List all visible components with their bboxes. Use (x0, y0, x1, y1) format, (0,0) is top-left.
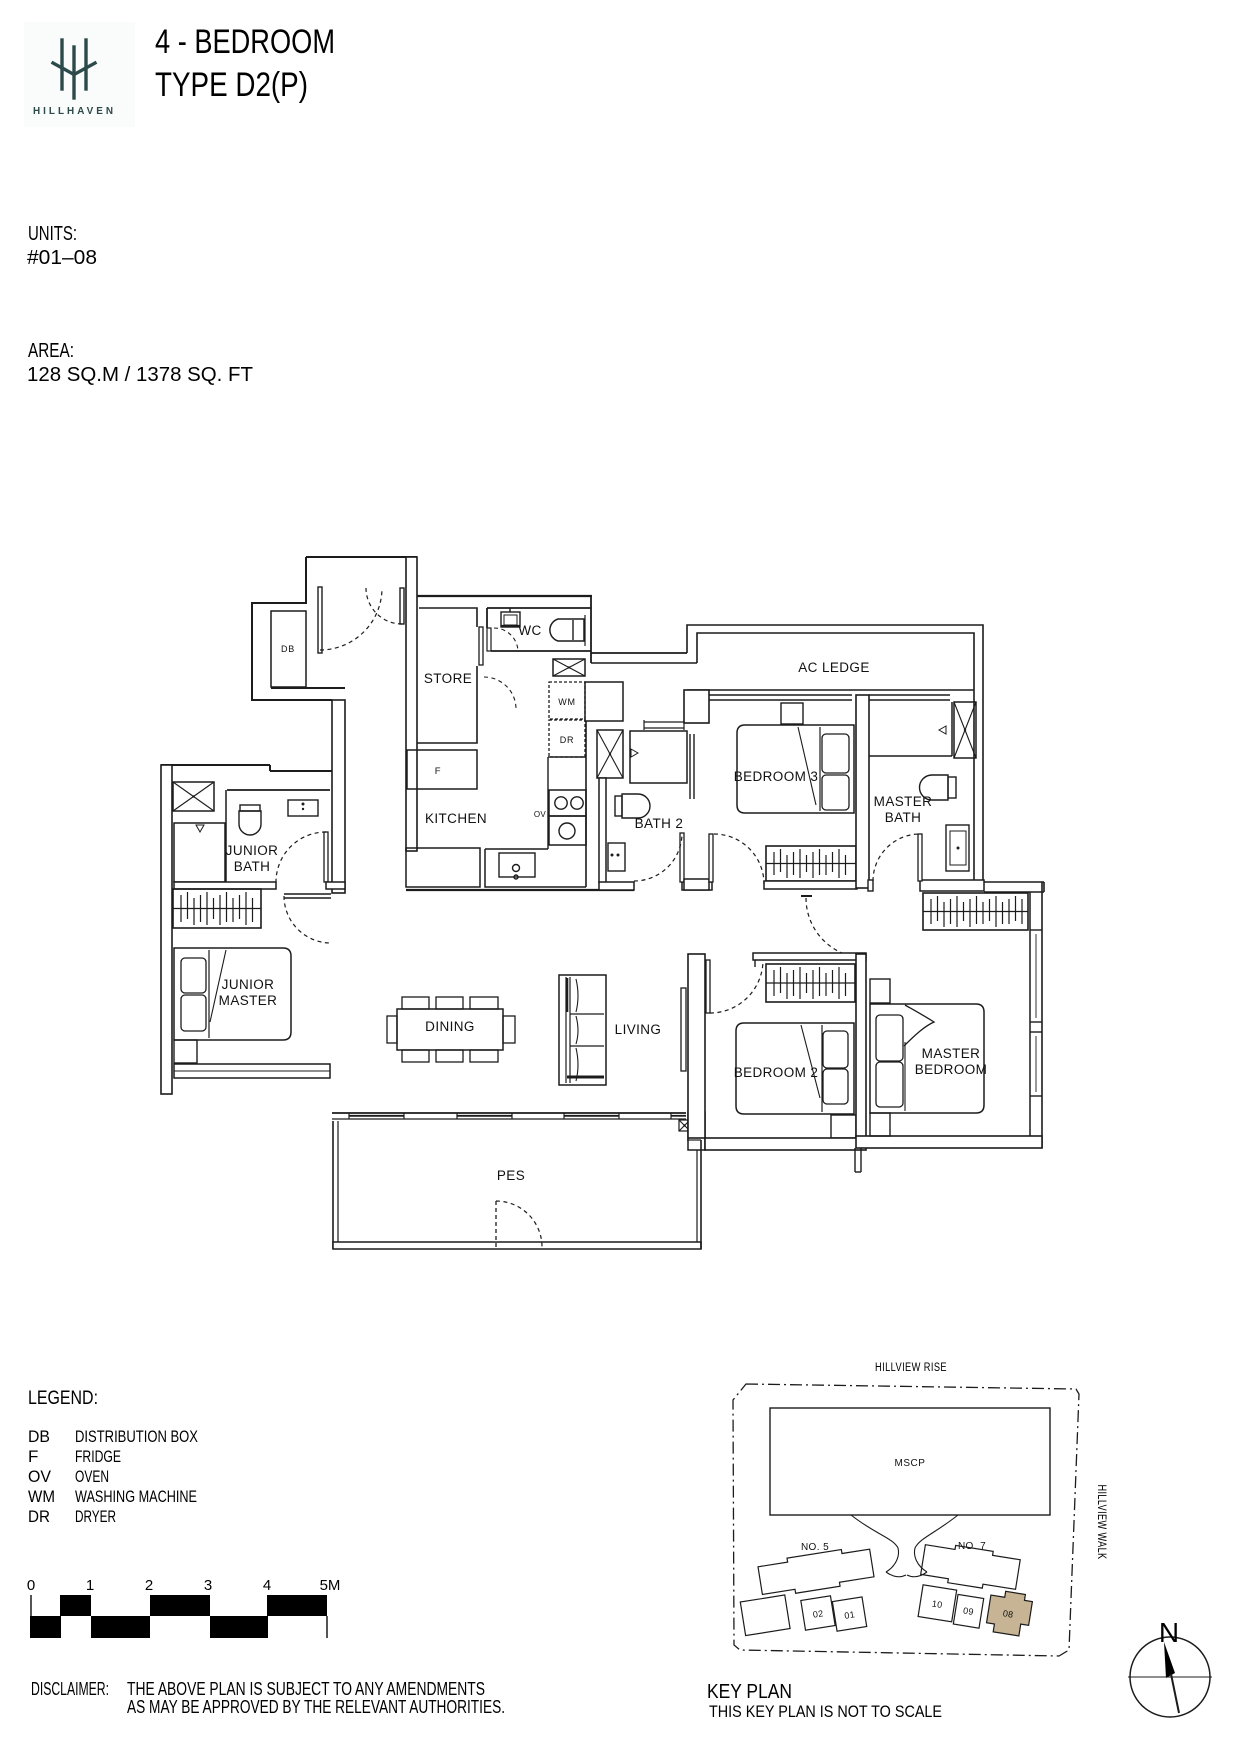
svg-text:4: 4 (263, 1577, 271, 1594)
svg-text:DINING: DINING (425, 1019, 475, 1034)
svg-text:MSCP: MSCP (895, 1458, 926, 1469)
svg-text:NO. 5: NO. 5 (801, 1542, 829, 1553)
svg-text:UNITS:: UNITS: (28, 223, 77, 245)
svg-text:OVEN: OVEN (75, 1467, 109, 1486)
svg-text:DR: DR (560, 735, 575, 745)
svg-text:AC LEDGE: AC LEDGE (798, 660, 869, 675)
svg-text:02: 02 (812, 1608, 824, 1620)
svg-text:KEY PLAN: KEY PLAN (707, 1681, 792, 1703)
svg-text:THE ABOVE PLAN IS SUBJECT: THE ABOVE PLAN IS SUBJECT TO ANY AMENDME… (127, 1679, 485, 1699)
svg-text:BEDROOM 2: BEDROOM 2 (734, 1065, 819, 1080)
svg-text:MASTER: MASTER (922, 1046, 981, 1061)
svg-text:PES: PES (497, 1168, 525, 1183)
svg-text:BATH: BATH (234, 859, 271, 874)
svg-text:1: 1 (86, 1577, 94, 1594)
svg-text:AS MAY BE APPROVED BY THE: AS MAY BE APPROVED BY THE RELEVANT AUTHO… (127, 1697, 505, 1717)
svg-text:DB: DB (28, 1427, 50, 1446)
svg-text:5M: 5M (320, 1577, 341, 1594)
svg-text:DB: DB (281, 644, 295, 654)
svg-text:JUNIOR: JUNIOR (222, 977, 275, 992)
svg-text:HILLVIEW WALK: HILLVIEW WALK (1095, 1485, 1107, 1560)
svg-text:01: 01 (844, 1609, 856, 1621)
svg-text:#01–08: #01–08 (27, 247, 97, 269)
svg-text:WM: WM (28, 1487, 55, 1506)
svg-text:F: F (28, 1447, 38, 1466)
svg-text:WM: WM (558, 697, 576, 707)
svg-text:OV: OV (534, 810, 547, 819)
svg-text:128 SQ.M / 1378 SQ. FT: 128 SQ.M / 1378 SQ. FT (27, 364, 253, 386)
svg-text:09: 09 (962, 1606, 974, 1618)
svg-text:DISTRIBUTION BOX: DISTRIBUTION BOX (75, 1427, 198, 1446)
svg-text:HILLHAVEN: HILLHAVEN (33, 105, 116, 117)
svg-text:STORE: STORE (424, 671, 472, 686)
svg-text:DR: DR (28, 1507, 50, 1526)
svg-text:OV: OV (28, 1467, 52, 1486)
svg-text:4 - BEDROOM: 4 - BEDROOM (155, 23, 335, 61)
svg-text:KITCHEN: KITCHEN (425, 811, 487, 826)
svg-text:F: F (435, 766, 441, 777)
svg-text:AREA:: AREA: (28, 340, 74, 362)
svg-text:TYPE D2(P): TYPE D2(P) (155, 66, 308, 104)
svg-text:08: 08 (1002, 1608, 1014, 1620)
svg-text:10: 10 (931, 1599, 943, 1611)
svg-text:BATH 2: BATH 2 (635, 816, 684, 831)
svg-text:FRIDGE: FRIDGE (75, 1447, 121, 1466)
svg-text:MASTER: MASTER (874, 794, 933, 809)
svg-text:3: 3 (204, 1577, 212, 1594)
svg-text:BEDROOM 3: BEDROOM 3 (734, 769, 819, 784)
svg-text:DRYER: DRYER (75, 1507, 116, 1526)
svg-text:MASTER: MASTER (219, 993, 278, 1008)
svg-text:N: N (1159, 1617, 1179, 1648)
svg-text:2: 2 (145, 1577, 153, 1594)
svg-text:BATH: BATH (885, 810, 922, 825)
svg-text:WC: WC (518, 623, 541, 638)
svg-text:LEGEND:: LEGEND: (28, 1388, 98, 1409)
svg-text:DISCLAIMER:: DISCLAIMER: (31, 1679, 109, 1699)
svg-text:HILLVIEW RISE: HILLVIEW RISE (875, 1362, 947, 1374)
svg-text:BEDROOM: BEDROOM (915, 1062, 988, 1077)
svg-text:WASHING MACHINE: WASHING MACHINE (75, 1487, 197, 1506)
svg-text:0: 0 (27, 1577, 35, 1594)
svg-text:LIVING: LIVING (615, 1022, 662, 1037)
svg-text:THIS KEY PLAN IS NOT TO: THIS KEY PLAN IS NOT TO SCALE (709, 1702, 942, 1721)
svg-text:JUNIOR: JUNIOR (226, 843, 279, 858)
